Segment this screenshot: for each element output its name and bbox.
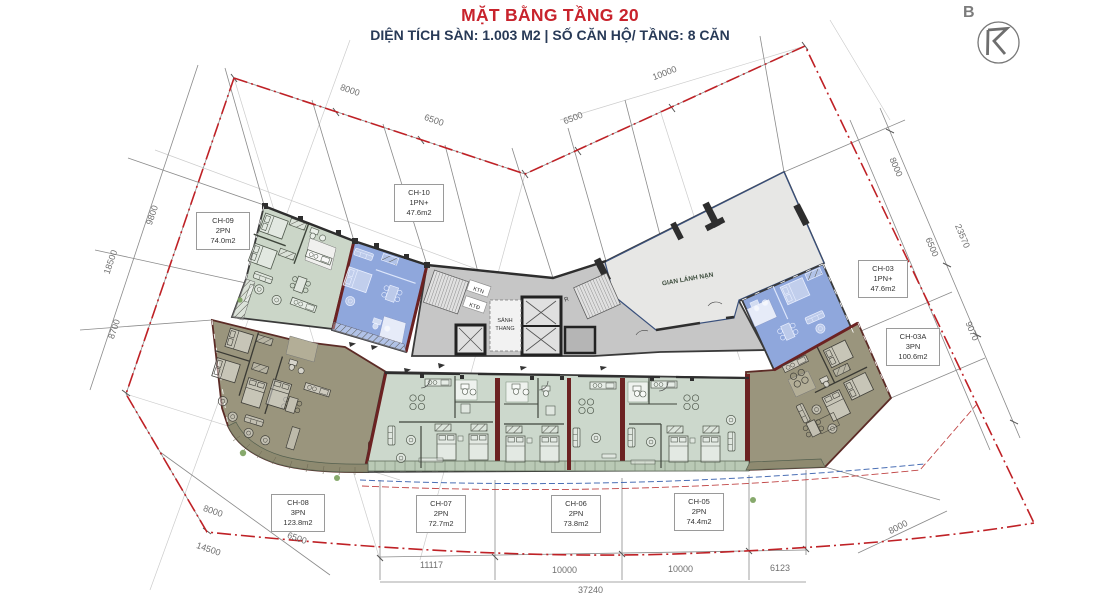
svg-text:SẢNH: SẢNH bbox=[497, 317, 512, 324]
svg-text:THANG: THANG bbox=[495, 326, 514, 332]
